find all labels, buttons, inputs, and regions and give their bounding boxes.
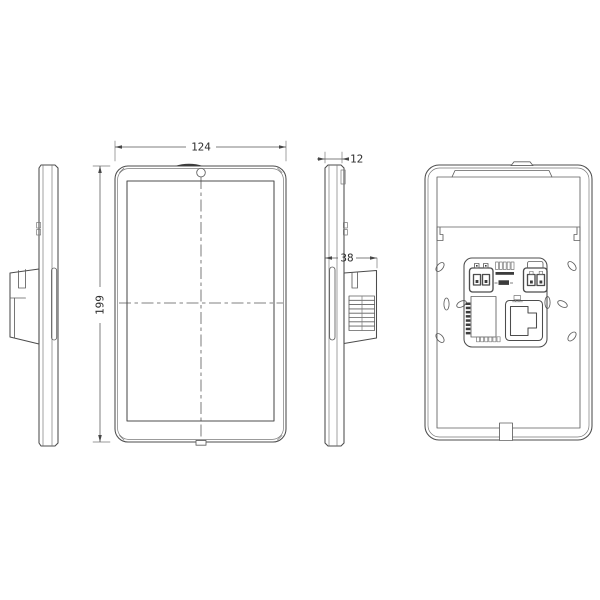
dimension-panel-thickness: 12 bbox=[317, 152, 363, 166]
latch-terminal-block bbox=[524, 262, 548, 293]
dimension-thickness-label: 12 bbox=[350, 153, 363, 166]
power-terminal-block bbox=[470, 264, 494, 293]
right-side-view bbox=[325, 165, 377, 446]
pin-module bbox=[466, 297, 500, 342]
top-clip-right bbox=[341, 170, 345, 184]
dimension-front-height: 199 bbox=[93, 166, 110, 442]
front-bottom-tab bbox=[196, 440, 206, 445]
pin-header bbox=[495, 262, 515, 285]
screen-area bbox=[127, 181, 274, 421]
front-view bbox=[115, 164, 286, 445]
speaker-slot-right bbox=[330, 267, 335, 340]
dimension-width-label: 124 bbox=[191, 141, 211, 154]
rear-view bbox=[425, 162, 592, 441]
mount-box-left bbox=[10, 269, 39, 344]
rear-bottom-tab bbox=[500, 423, 513, 441]
rear-top-tab bbox=[511, 162, 533, 166]
technical-drawing-canvas: 199 124 bbox=[0, 0, 600, 600]
rj45-port bbox=[506, 296, 543, 341]
dimension-mount-depth: 38 bbox=[325, 252, 377, 269]
dimension-front-width: 124 bbox=[115, 141, 286, 162]
top-recess bbox=[452, 171, 552, 178]
camera-hole bbox=[197, 168, 206, 177]
mounting-bracket bbox=[437, 227, 580, 241]
mount-box-right bbox=[344, 271, 377, 344]
vent-fins bbox=[349, 296, 375, 331]
left-side-view bbox=[10, 165, 58, 446]
connector-module bbox=[464, 258, 547, 347]
technical-drawing-page: 199 124 bbox=[0, 0, 600, 600]
dimension-height-label: 199 bbox=[94, 295, 107, 315]
front-outer-frame bbox=[115, 166, 286, 442]
rear-outer-frame bbox=[425, 165, 592, 440]
top-tab bbox=[175, 164, 203, 166]
dimension-depth-label: 38 bbox=[340, 252, 353, 265]
